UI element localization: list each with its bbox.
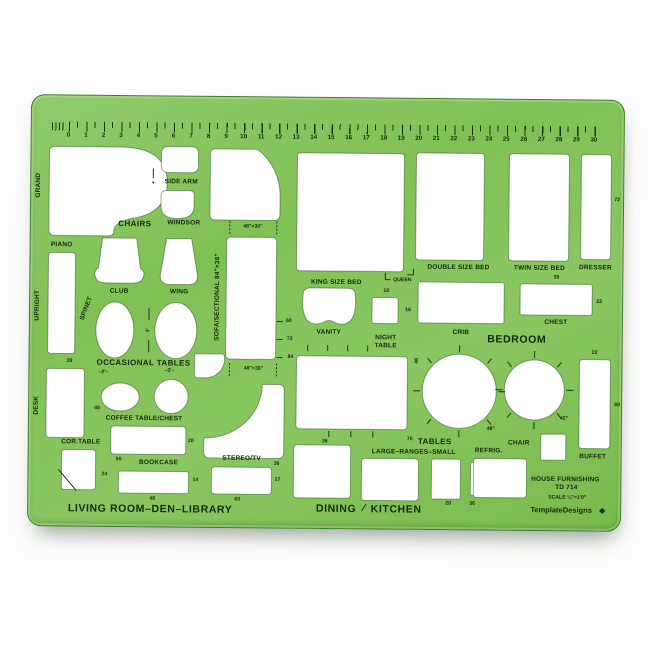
- dim-chest-22: 22: [596, 300, 602, 305]
- cutout-vanity: [302, 288, 355, 325]
- dim-range-36: 36: [469, 502, 475, 507]
- dim-twin-39: 39: [553, 276, 559, 281]
- ruler-number: 1: [77, 132, 95, 139]
- product-scale: SCALE ¼"=1'0": [548, 496, 586, 502]
- cutout-small-round-table: [154, 379, 188, 413]
- label-chest: CHEST: [544, 320, 567, 327]
- cutout-bookcase: [118, 471, 188, 494]
- ruler-number: 25: [498, 136, 516, 143]
- ruler-number: 16: [340, 134, 358, 141]
- brand-diamond-icon: ◆: [599, 507, 605, 515]
- cutout-sofa: [226, 237, 277, 359]
- cutout-king-bed: [296, 153, 404, 272]
- dim-3ft: –3'–: [164, 369, 174, 374]
- dim-dresser-72: 72: [614, 198, 620, 203]
- label-dresser: DRESSER: [579, 265, 612, 272]
- cutout-windsor-chair: [161, 190, 194, 218]
- ruler-number: 27: [533, 136, 551, 143]
- ruler-number: 20: [410, 135, 428, 142]
- ruler-number: 19: [392, 135, 410, 142]
- ruler-number: 14: [305, 134, 323, 141]
- label-crib: CRIB: [452, 330, 469, 337]
- ruler-number: 3: [112, 132, 130, 139]
- label-grand: GRAND: [36, 173, 43, 198]
- label-large-ranges-small: LARGE–RANGES–SMALL: [372, 449, 456, 456]
- label-side-arm: SIDE ARM: [165, 179, 198, 186]
- dim-crib-48: 48: [415, 358, 420, 364]
- label-twin-bed: TWIN SIZE BED: [514, 266, 565, 273]
- label-night-table-line1: NIGHT: [375, 335, 396, 342]
- zigzag-divider-icon: ∕: [363, 503, 365, 514]
- dim-dining-36-top: 36: [322, 439, 328, 444]
- cutout-range-small: [431, 459, 460, 499]
- label-corner-table: COR.TABLE: [61, 439, 100, 446]
- ruler-number: 29: [568, 136, 586, 143]
- ruler-number: 6: [165, 132, 183, 139]
- label-refrigerator: REFRIG.: [475, 448, 503, 455]
- label-occasional-tables: OCCASIONAL TABLES: [96, 359, 190, 368]
- furniture-stencil-template: 0123456789101112131415161718192021222324…: [27, 94, 625, 532]
- cutout-round-table-48: [422, 354, 497, 429]
- ruler-number: 8: [200, 133, 218, 140]
- cutout-sectional-notch: [194, 354, 224, 378]
- cutout-coffee-table: [111, 426, 186, 455]
- ruler-number: 11: [252, 133, 270, 140]
- ruler-start-ticks: [52, 122, 66, 130]
- label-desk: DESK: [34, 396, 41, 415]
- dim-book-48: 48: [149, 497, 155, 502]
- product-number: TD 714: [555, 485, 578, 492]
- label-piano: PIANO: [51, 242, 73, 249]
- cutout-occasional-table-oval-1: [96, 302, 135, 358]
- ruler-number: 2: [95, 132, 113, 139]
- label-coffee-table: COFFEE TABLE/CHEST: [106, 416, 183, 423]
- dim-cor-24: 24: [102, 472, 108, 477]
- ruler-number: 13: [287, 134, 305, 141]
- label-club: CLUB: [110, 289, 129, 296]
- ruler-number: 12: [270, 133, 288, 140]
- label-windsor: WINDSOR: [167, 220, 200, 227]
- label-sofa-sectional: SOFA/SECTIONAL 84"×36": [214, 253, 221, 341]
- cutout-range-medium: [361, 458, 418, 501]
- ruler-number: 26: [515, 136, 533, 143]
- cutout-small-oval-table: [101, 383, 139, 411]
- ruler-number: 10: [235, 133, 253, 140]
- dim-3ft-vertical: 3': [146, 328, 151, 332]
- cutout-refrigerator: [473, 458, 526, 498]
- ruler-number: 5: [147, 132, 165, 139]
- stencil-cutouts: [28, 95, 624, 531]
- dim-sofa-84: 84: [288, 355, 294, 360]
- dim-buffet-22: 22: [592, 351, 598, 356]
- cutout-night-table: [372, 297, 398, 323]
- dim-book-14: 14: [192, 478, 198, 483]
- label-chairs: CHAIRS: [118, 220, 151, 228]
- dim-circle-48: 48": [487, 427, 495, 432]
- cutout-sectional-curve: [204, 384, 285, 459]
- dim-2ft: –2'–: [98, 370, 108, 375]
- ruler-number: 4: [130, 132, 148, 139]
- cutout-upright-piano: [48, 252, 76, 353]
- ruler-number: 17: [357, 134, 375, 141]
- ruler-number: 24: [480, 135, 498, 142]
- product-name: HOUSE FURNISHING: [531, 477, 600, 484]
- dim-48x30: 48"×30": [243, 225, 263, 230]
- ruler-number: 9: [217, 133, 235, 140]
- dim-sofa-72: 72: [287, 337, 293, 342]
- label-king-bed: KING SIZE BED: [311, 280, 362, 287]
- ruler-number: 28: [550, 136, 568, 143]
- dim-queen-18: 18: [383, 289, 389, 294]
- cutout-crib: [418, 282, 504, 324]
- label-queen: QUEEN: [393, 278, 412, 283]
- cutout-desk: [46, 368, 85, 437]
- label-bookcase: BOOKCASE: [139, 460, 178, 467]
- cutout-round-table-42: [504, 360, 565, 421]
- ruler-number: 0: [60, 131, 78, 138]
- label-double-bed: DOUBLE SIZE BED: [427, 265, 489, 272]
- ruler-number: 22: [445, 135, 463, 142]
- cutout-buffet: [579, 359, 611, 448]
- cutout-sectional-corner: [210, 149, 281, 221]
- dim-book-60: 60: [234, 498, 240, 503]
- cutout-chest: [520, 284, 592, 316]
- cutout-chair: [541, 434, 566, 460]
- dim-desk-48: 48: [94, 406, 100, 411]
- label-wing: WING: [170, 289, 189, 296]
- label-chair: CHAIR: [508, 441, 530, 448]
- title-kitchen: KITCHEN: [371, 504, 422, 515]
- cutout-twin-bed: [509, 154, 570, 262]
- dim-upright-39: 39: [67, 359, 73, 364]
- label-bedroom: BEDROOM: [487, 334, 546, 345]
- dim-dining-36-left: 36: [274, 462, 280, 467]
- dim-48x36: 48"×36": [244, 367, 264, 372]
- dim-night-18: 18: [405, 308, 411, 313]
- ruler-number: 21: [427, 135, 445, 142]
- cutout-corner-table: [61, 449, 95, 489]
- cutout-dresser: [581, 154, 612, 259]
- dim-sofa-60: 60: [286, 319, 292, 324]
- dim-buffet-60: 60: [614, 403, 620, 408]
- cutout-stereo-tv: [211, 467, 271, 495]
- dim-stereo-17: 17: [274, 478, 280, 483]
- cutout-range-large: [293, 445, 351, 499]
- label-upright: UPRIGHT: [35, 290, 42, 321]
- product-photo: { "template": { "product_line1": "HOUSE …: [0, 0, 650, 650]
- dim-tables-70: 70: [407, 437, 413, 442]
- cutout-occasional-table-oval-2: [155, 302, 198, 358]
- ruler-number: 30: [585, 136, 603, 143]
- ruler-number: 18: [375, 134, 393, 141]
- label-buffet: BUFFET: [579, 454, 606, 461]
- title-dining: DINING: [316, 504, 356, 515]
- label-stereo-tv: STEREO/TV: [222, 456, 261, 463]
- cutout-dining-table: [296, 356, 408, 430]
- label-night-table-line2: TABLE: [375, 343, 397, 350]
- ruler-number: 23: [463, 135, 481, 142]
- dim-coffee-20: 20: [188, 439, 194, 444]
- brand-logo: TemplateDesigns: [530, 506, 592, 514]
- cutout-side-arm-chair: [161, 146, 198, 172]
- dim-circle-42: 42": [560, 417, 568, 422]
- dim-range-20: 20: [445, 502, 451, 507]
- label-vanity: VANITY: [316, 330, 341, 337]
- ruler-number: 15: [322, 134, 340, 141]
- label-tables: TABLES: [418, 438, 452, 446]
- cutout-wing-chair: [160, 238, 198, 284]
- cutout-double-bed: [416, 153, 485, 261]
- dim-book-50: 50: [116, 457, 122, 462]
- title-living-room: LIVING ROOM–DEN–LIBRARY: [68, 503, 233, 515]
- ruler-number: 7: [182, 133, 200, 140]
- cutout-club-chair: [95, 238, 145, 283]
